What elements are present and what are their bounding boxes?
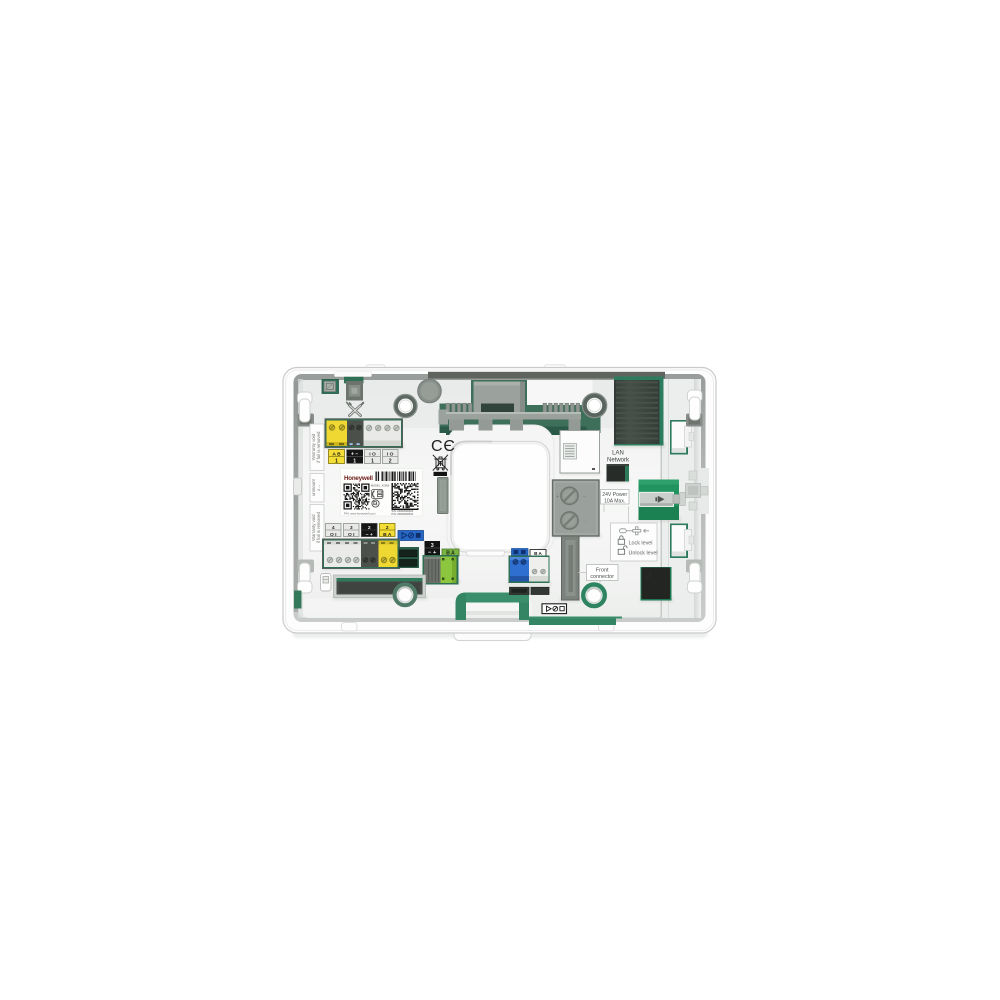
svg-text:P/N: www.honeywell.com: P/N: www.honeywell.com [344, 512, 376, 516]
svg-text:2: 2 [368, 525, 371, 531]
svg-text:MODEL: X0000: MODEL: X0000 [371, 484, 390, 488]
svg-text:Front: Front [596, 567, 609, 573]
svg-text:O I: O I [330, 532, 337, 538]
svg-text:1: 1 [335, 459, 338, 465]
svg-text:if foil is removed: if foil is removed [316, 512, 321, 544]
svg-text:+ −: + − [351, 452, 358, 458]
svg-text:connector: connector [590, 574, 614, 580]
svg-text:Warranty void: Warranty void [311, 514, 316, 541]
svg-text:LAN: LAN [612, 451, 624, 457]
svg-text:Warranty void: Warranty void [311, 433, 316, 460]
svg-text:1: 1 [353, 459, 356, 465]
svg-text:Network: Network [607, 458, 630, 464]
svg-text:B A: B A [534, 551, 542, 556]
svg-text:Honeywell: Honeywell [344, 475, 373, 482]
svg-text:24V Power: 24V Power [602, 492, 627, 498]
svg-text:4: 4 [332, 525, 335, 531]
svg-text:Lock level: Lock level [629, 541, 653, 547]
svg-text:+: + [556, 494, 559, 500]
svg-text:x→: x→ [316, 484, 321, 490]
svg-text:1: 1 [371, 459, 374, 465]
svg-text:−: − [583, 494, 586, 500]
svg-text:2: 2 [386, 525, 389, 531]
svg-text:CЄ: CЄ [431, 438, 456, 455]
svg-text:O I: O I [348, 532, 355, 538]
svg-text:I O: I O [369, 451, 376, 457]
svg-text:unmount: unmount [311, 479, 316, 497]
svg-text:Unlock level: Unlock level [629, 551, 658, 557]
svg-text:2: 2 [389, 459, 392, 465]
svg-text:if foil is removed: if foil is removed [316, 431, 321, 463]
svg-text:3: 3 [350, 525, 353, 531]
svg-text:3: 3 [431, 543, 434, 549]
svg-text:I O: I O [387, 451, 394, 457]
svg-text:⋯: ⋯ [582, 519, 587, 525]
svg-text:− +: − + [366, 533, 373, 538]
svg-text:A B: A B [332, 451, 341, 457]
svg-text:10A Max.: 10A Max. [604, 498, 625, 504]
svg-text:B A: B A [383, 532, 392, 538]
svg-text:P/N: 00000000000: P/N: 00000000000 [392, 512, 414, 516]
